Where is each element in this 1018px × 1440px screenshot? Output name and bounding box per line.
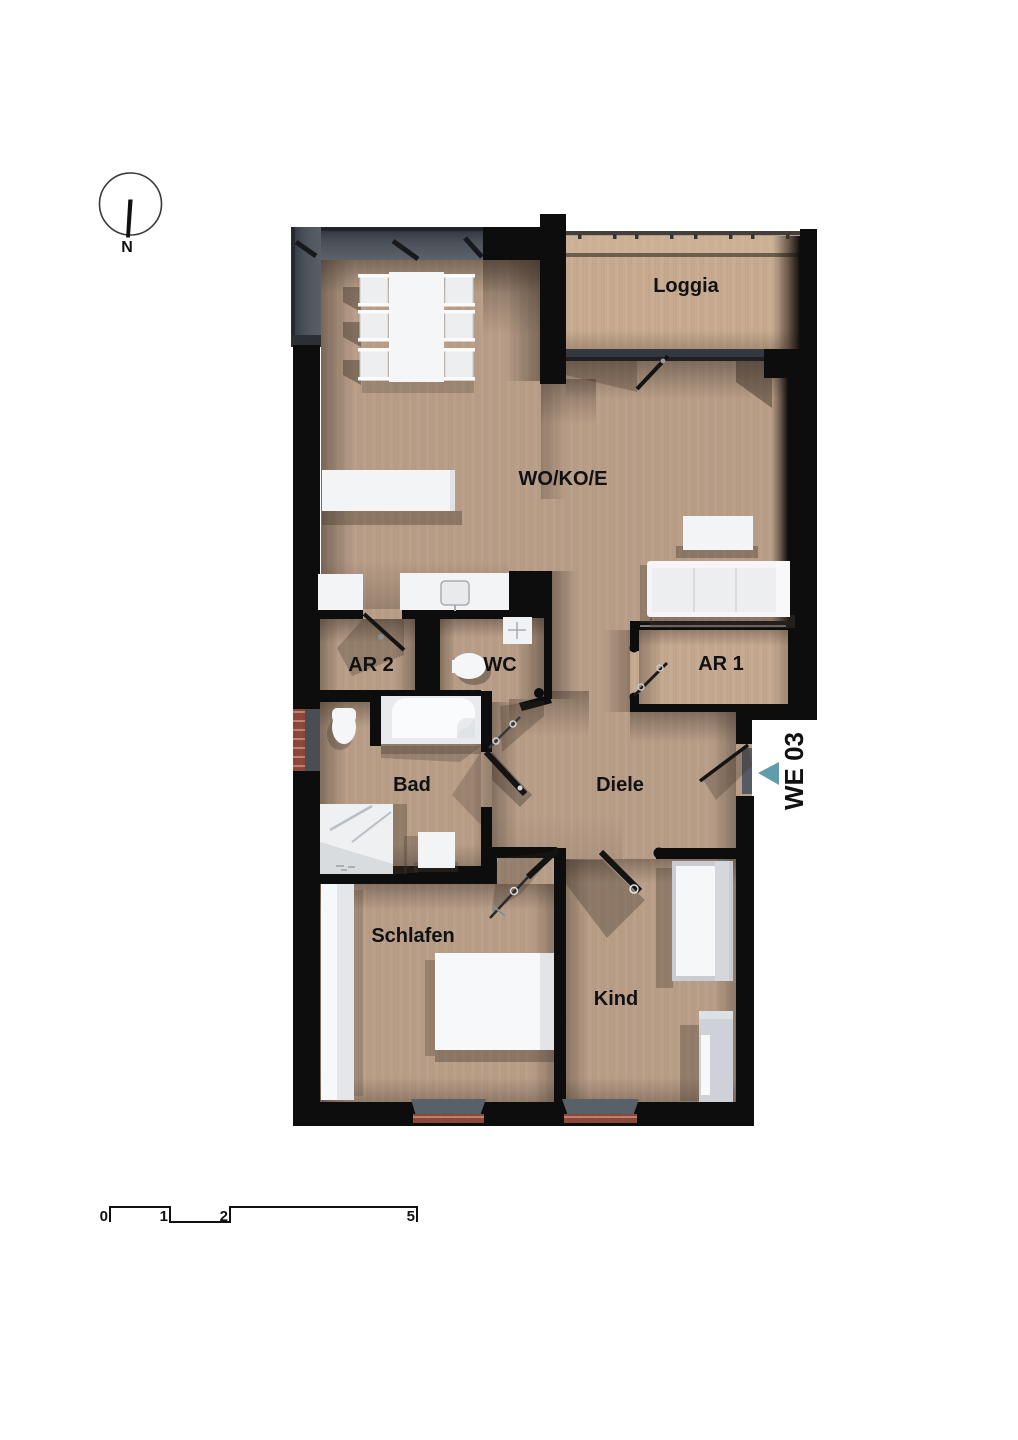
svg-text:AR 2: AR 2: [348, 654, 394, 676]
svg-text:2: 2: [220, 1208, 228, 1225]
svg-text:AR 1: AR 1: [698, 653, 744, 675]
svg-text:N: N: [121, 239, 133, 256]
svg-text:Loggia: Loggia: [653, 275, 719, 297]
svg-text:0: 0: [100, 1208, 108, 1225]
svg-text:5: 5: [407, 1208, 415, 1225]
svg-text:WE 03: WE 03: [779, 732, 809, 810]
svg-text:WO/KO/E: WO/KO/E: [519, 468, 608, 490]
svg-text:WC: WC: [483, 654, 516, 676]
svg-text:1: 1: [160, 1208, 168, 1225]
svg-text:Schlafen: Schlafen: [371, 925, 454, 947]
svg-text:Kind: Kind: [594, 988, 638, 1010]
svg-text:Diele: Diele: [596, 774, 644, 796]
svg-text:Bad: Bad: [393, 774, 431, 796]
